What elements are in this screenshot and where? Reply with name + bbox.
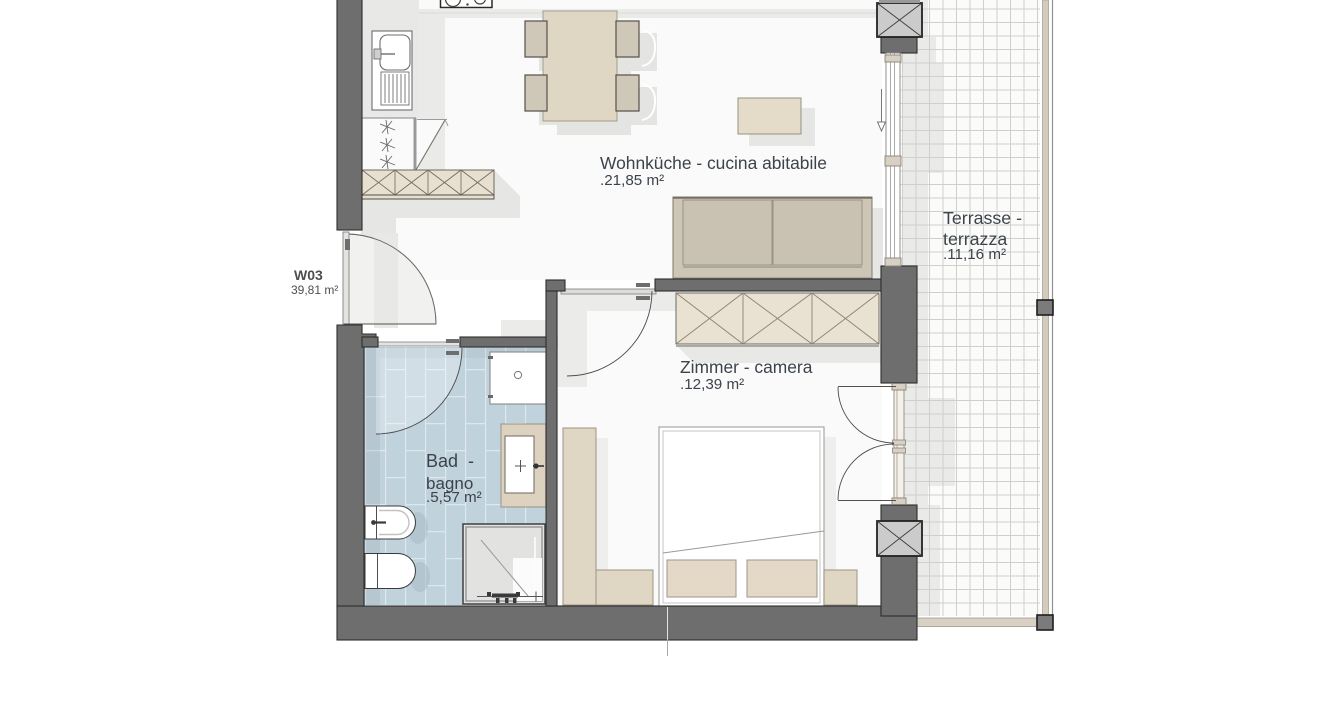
svg-text:Zimmer - camera: Zimmer - camera: [680, 357, 813, 377]
svg-text:.12,39 m²: .12,39 m²: [680, 376, 744, 393]
svg-text:.5,57 m²: .5,57 m²: [426, 489, 482, 506]
svg-text:Wohnküche - cucina abitabile: Wohnküche - cucina abitabile: [600, 153, 827, 173]
svg-text:.21,85 m²: .21,85 m²: [600, 172, 664, 189]
svg-text:W03: W03: [294, 267, 323, 283]
svg-text:39,81 m²: 39,81 m²: [291, 283, 338, 297]
svg-text:Terrasse -: Terrasse -: [943, 208, 1022, 228]
svg-text:Bad -: Bad -: [426, 451, 474, 471]
svg-text:.11,16 m²: .11,16 m²: [943, 246, 1006, 263]
